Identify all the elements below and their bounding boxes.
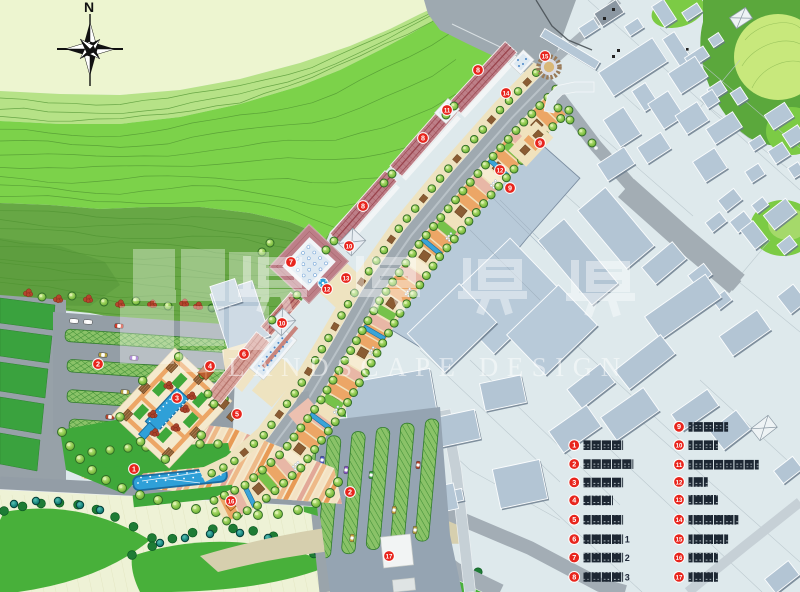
svg-text:3: 3 <box>175 393 179 402</box>
svg-text:8: 8 <box>476 65 480 74</box>
svg-text:17: 17 <box>386 554 393 560</box>
svg-text:4: 4 <box>208 361 212 370</box>
svg-text:13: 13 <box>343 276 350 282</box>
svg-text:4: 4 <box>572 496 576 505</box>
svg-text:2: 2 <box>348 487 352 496</box>
svg-text:15: 15 <box>542 54 549 60</box>
svg-text:8: 8 <box>572 572 576 581</box>
svg-text:9: 9 <box>677 422 681 431</box>
svg-text:11: 11 <box>444 108 451 114</box>
svg-text:1: 1 <box>625 535 630 545</box>
svg-text:12: 12 <box>324 287 331 293</box>
svg-text:2: 2 <box>625 553 630 563</box>
svg-text:9: 9 <box>538 138 542 147</box>
svg-text:11: 11 <box>676 463 683 469</box>
svg-text:N: N <box>84 0 94 15</box>
svg-text:13: 13 <box>676 498 683 504</box>
svg-text:16: 16 <box>676 556 683 562</box>
svg-text:2: 2 <box>96 359 100 368</box>
svg-text:14: 14 <box>503 91 510 97</box>
svg-text:2: 2 <box>572 459 576 468</box>
svg-text:10: 10 <box>676 444 683 450</box>
svg-text:15: 15 <box>676 538 683 544</box>
svg-text:LANDSCAPE DESIGN: LANDSCAPE DESIGN <box>228 352 629 382</box>
svg-text:17: 17 <box>676 575 683 581</box>
svg-text:9: 9 <box>508 183 512 192</box>
svg-text:10: 10 <box>346 244 353 250</box>
svg-text:3: 3 <box>625 573 630 583</box>
svg-text:7: 7 <box>289 257 293 266</box>
svg-text:12: 12 <box>676 480 683 486</box>
svg-text:6: 6 <box>242 349 246 358</box>
svg-text:1: 1 <box>572 441 576 450</box>
svg-text:8: 8 <box>361 201 365 210</box>
svg-text:6: 6 <box>572 535 576 544</box>
svg-text:1: 1 <box>132 464 136 473</box>
svg-text:3: 3 <box>572 478 576 487</box>
svg-text:8: 8 <box>421 133 425 142</box>
svg-text:14: 14 <box>676 518 683 524</box>
svg-text:12: 12 <box>497 168 504 174</box>
svg-text:5: 5 <box>572 515 576 524</box>
svg-text:7: 7 <box>572 553 576 562</box>
svg-text:5: 5 <box>235 409 239 418</box>
svg-text:10: 10 <box>279 321 286 327</box>
svg-text:16: 16 <box>228 499 235 505</box>
